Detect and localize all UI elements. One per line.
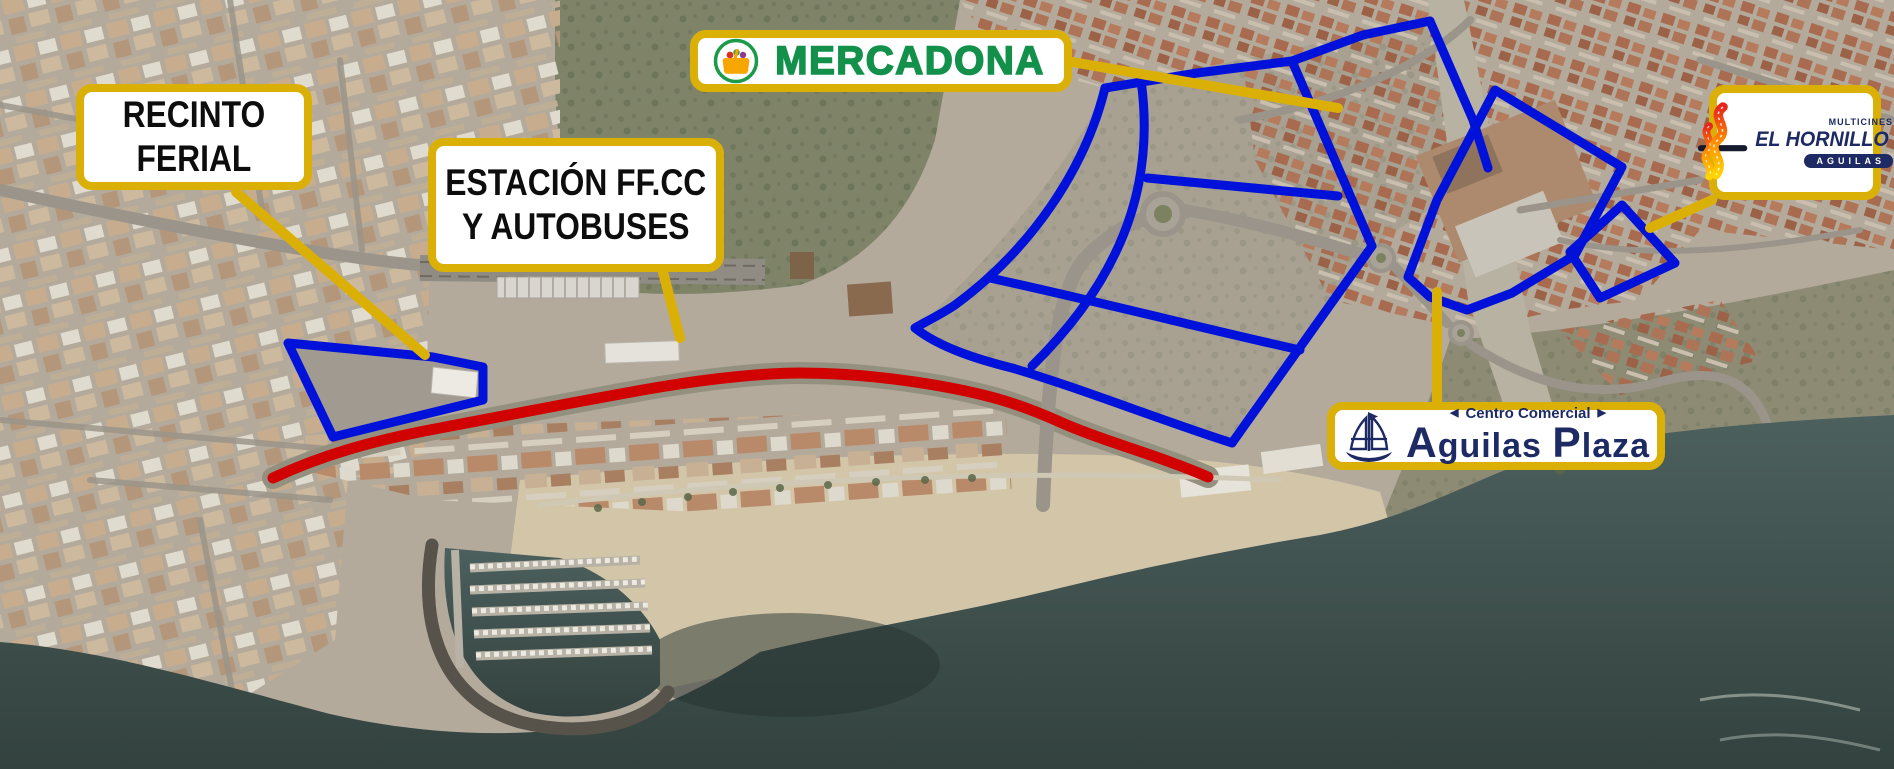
triangle-left-icon: ◀	[1450, 408, 1458, 419]
label-el-hornillo: MULTICINES EL HORNILLO AGUILAS	[1709, 85, 1881, 200]
label-text: MULTICINES	[1829, 117, 1893, 127]
label-aguilas-plaza: ◀ Centro Comercial ▶ Aguilas Plaza	[1327, 402, 1665, 470]
film-flame-icon	[1697, 97, 1749, 189]
shopping-basket-icon	[713, 38, 759, 84]
label-text: FERIAL	[123, 137, 266, 181]
label-mercadona: MERCADONA	[690, 30, 1072, 92]
label-estacion-ffcc: ESTACIÓN FF.CC Y AUTOBUSES	[428, 138, 724, 272]
label-text: Plaza	[1552, 422, 1650, 467]
label-text: EL HORNILLO	[1755, 128, 1888, 152]
sailboat-icon	[1342, 409, 1396, 463]
label-recinto-ferial: RECINTO FERIAL	[76, 84, 312, 190]
label-text: Y AUTOBUSES	[445, 205, 706, 249]
label-text: RECINTO	[123, 93, 266, 137]
label-text: Aguilas	[1406, 422, 1542, 467]
triangle-right-icon: ▶	[1598, 408, 1606, 419]
label-text: MERCADONA	[775, 39, 1045, 84]
annotated-satellite-map: RECINTO FERIAL ESTACIÓN FF.CC Y AUTOBUSE…	[0, 0, 1894, 769]
label-text: ESTACIÓN FF.CC	[445, 161, 706, 205]
label-text: AGUILAS	[1804, 154, 1893, 168]
